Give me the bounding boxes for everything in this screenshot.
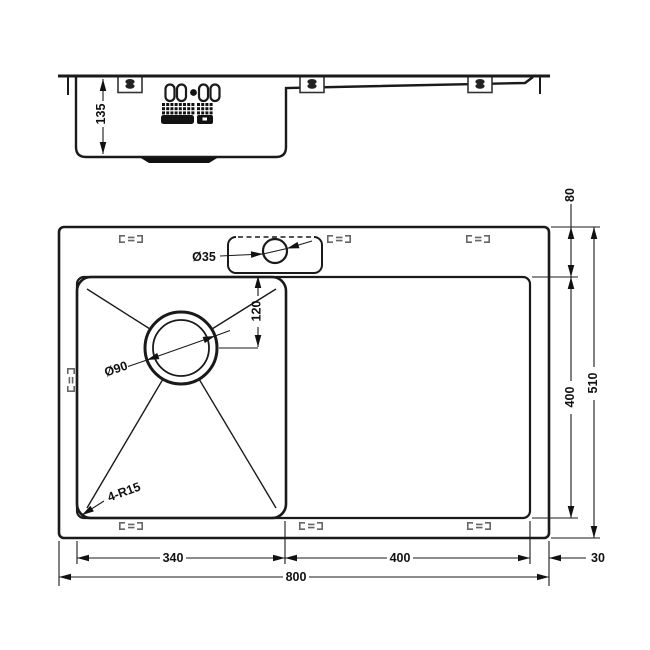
dim-label-drainboard-width: 400 [390, 551, 411, 565]
strainer-stamp-icon [161, 103, 213, 124]
dim-label-top-margin: 80 [563, 188, 577, 202]
dim-label-drain-offset: 120 [250, 301, 264, 322]
callout-corner-radius-leader [82, 501, 104, 515]
bowl-cross-lines [87, 289, 276, 508]
drawing-canvas: 135 Ø35 [0, 0, 650, 650]
dim-label-right-margin: 30 [591, 551, 605, 565]
dim-label-bowl-width: 340 [163, 551, 184, 565]
drain-fitting-bump [140, 158, 218, 164]
dim-label-overall-depth: 510 [586, 373, 600, 394]
sink-inner-edge [77, 277, 530, 518]
dim-label-faucet-dia: Ø35 [192, 250, 216, 264]
dim-label-drain-dia: Ø90 [103, 359, 130, 380]
dim-label-corner-radius: 4-R15 [106, 480, 143, 505]
dims-bottom [59, 521, 586, 586]
side-view: 135 [58, 76, 550, 163]
dims-right [532, 204, 600, 538]
dim-label-overall-width: 800 [286, 570, 307, 584]
plan-view: Ø35 Ø90 120 4-R15 [59, 188, 605, 586]
sink-technical-drawing: 135 Ø35 [0, 0, 650, 650]
dim-label-inner-depth: 400 [563, 387, 577, 408]
dim-label-bowl-depth: 135 [94, 104, 108, 125]
overflow-holes-icon [166, 85, 220, 102]
